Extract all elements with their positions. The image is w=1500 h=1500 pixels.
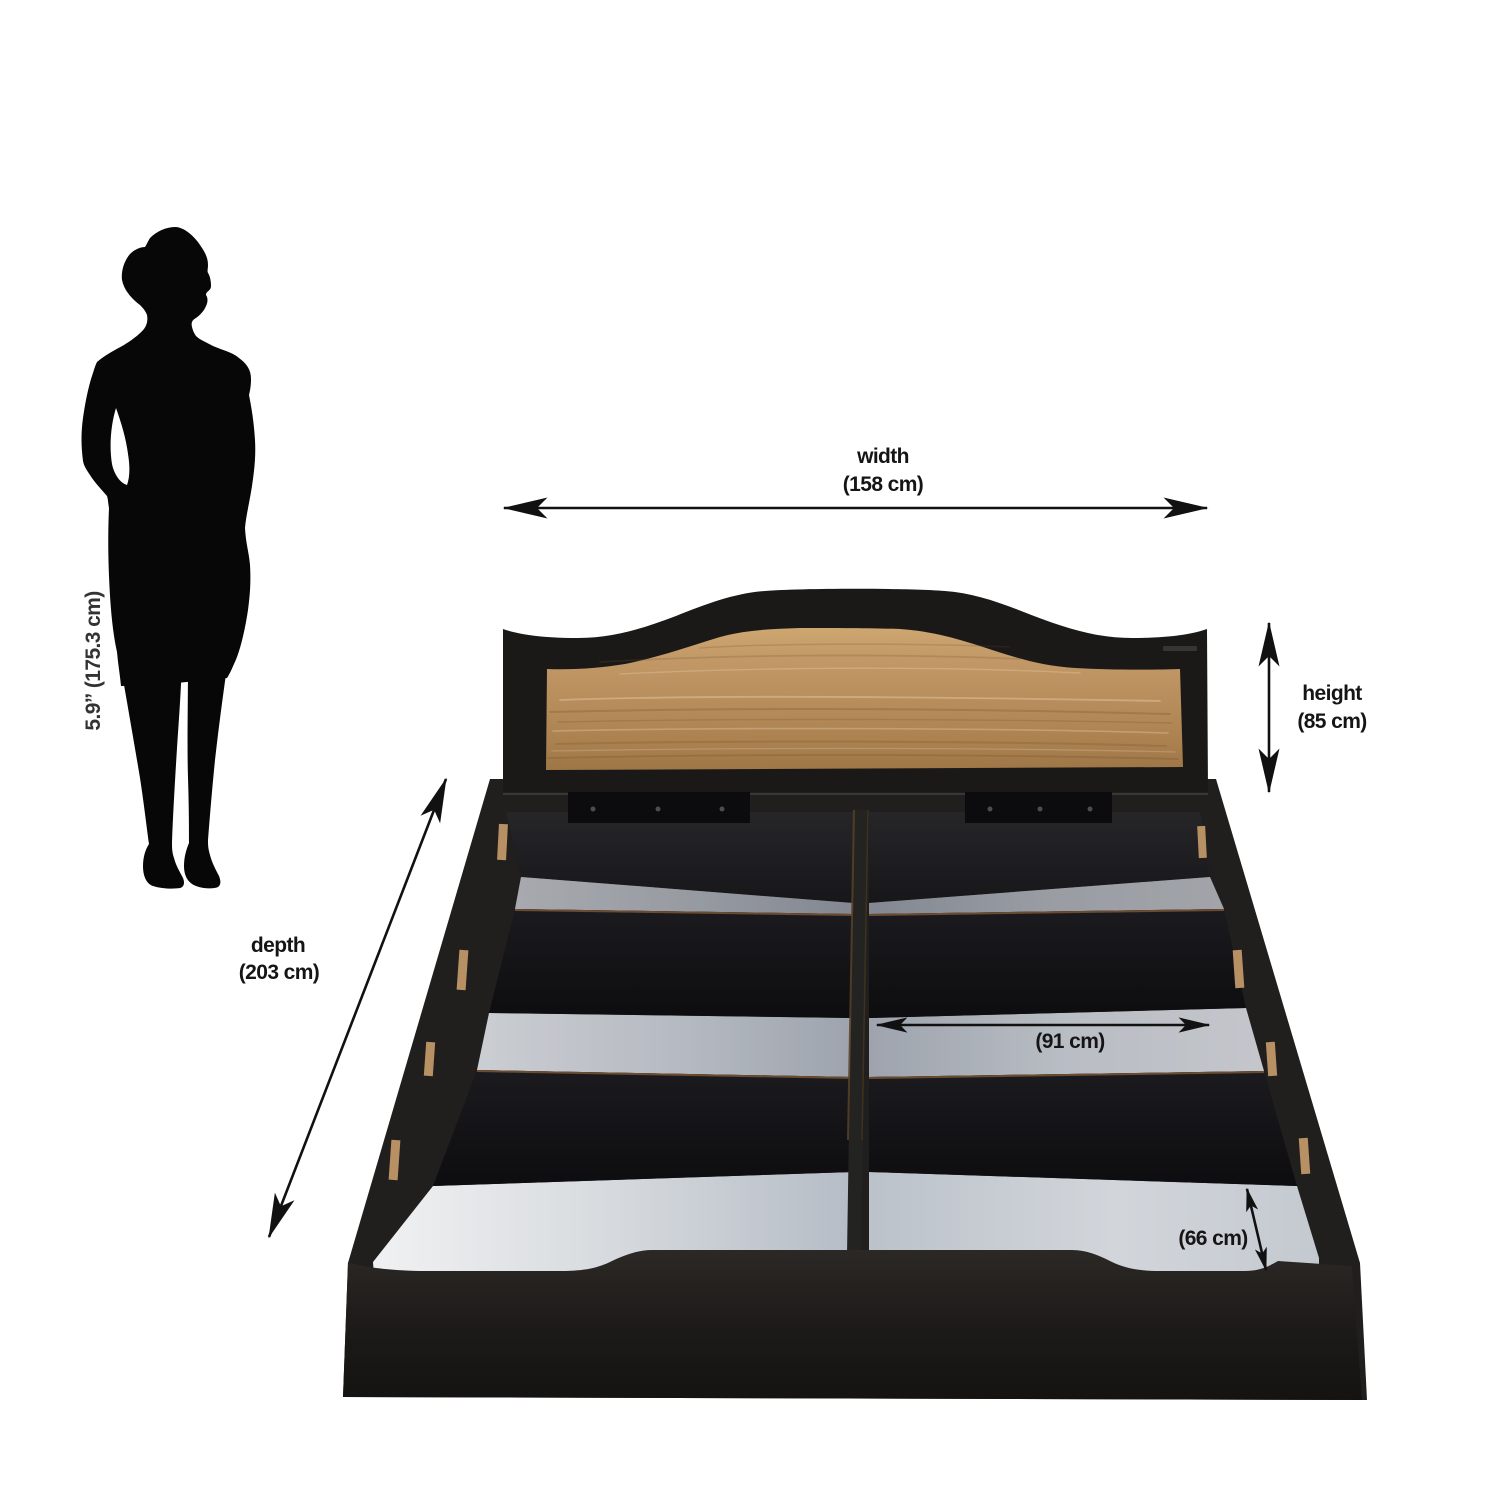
svg-text:(66 cm): (66 cm): [1178, 1227, 1247, 1250]
svg-text:depth: depth: [251, 934, 305, 957]
svg-text:(158 cm): (158 cm): [843, 473, 923, 496]
svg-text:(91 cm): (91 cm): [1035, 1030, 1104, 1053]
svg-text:(203 cm): (203 cm): [239, 961, 319, 984]
svg-text:(85 cm): (85 cm): [1297, 710, 1366, 733]
svg-text:width: width: [856, 445, 909, 468]
svg-text:height: height: [1302, 682, 1362, 705]
svg-text:5.9” (175.3 cm): 5.9” (175.3 cm): [82, 591, 105, 730]
